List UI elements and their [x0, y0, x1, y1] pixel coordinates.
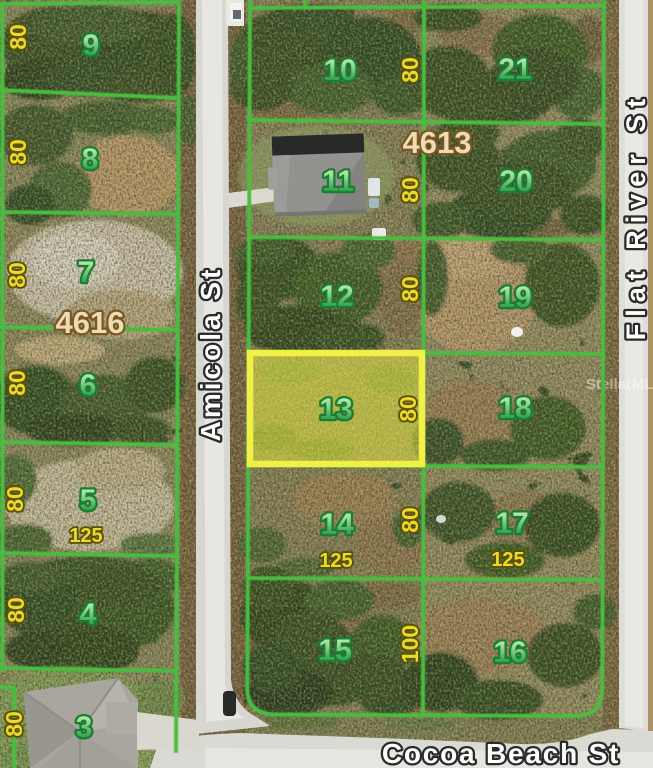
svg-text:100: 100 — [397, 625, 423, 663]
svg-text:80: 80 — [1, 711, 27, 737]
svg-text:80: 80 — [5, 139, 31, 165]
svg-text:125: 125 — [69, 525, 102, 547]
svg-text:13: 13 — [319, 393, 352, 426]
svg-text:80: 80 — [395, 396, 421, 422]
svg-text:15: 15 — [318, 634, 351, 667]
svg-text:19: 19 — [498, 281, 531, 314]
svg-text:4613: 4613 — [403, 125, 472, 160]
svg-text:21: 21 — [498, 53, 531, 86]
svg-text:20: 20 — [499, 165, 532, 198]
svg-text:4616: 4616 — [56, 305, 125, 340]
svg-text:80: 80 — [397, 177, 423, 203]
svg-text:80: 80 — [2, 486, 28, 512]
svg-text:Cocoa Beach St: Cocoa Beach St — [382, 738, 620, 768]
svg-text:Flat River St: Flat River St — [621, 92, 651, 341]
svg-text:80: 80 — [3, 597, 29, 623]
svg-text:12: 12 — [320, 280, 353, 313]
svg-text:80: 80 — [397, 507, 423, 533]
svg-text:Amicola St: Amicola St — [195, 267, 226, 442]
svg-text:11: 11 — [322, 165, 354, 198]
svg-text:5: 5 — [80, 484, 97, 517]
svg-text:4: 4 — [80, 598, 97, 631]
svg-text:80: 80 — [4, 262, 30, 288]
svg-text:125: 125 — [319, 550, 352, 572]
svg-text:6: 6 — [80, 369, 97, 402]
svg-text:80: 80 — [4, 370, 30, 396]
svg-text:14: 14 — [320, 508, 354, 541]
svg-text:7: 7 — [78, 256, 95, 289]
svg-text:StellarMLS: StellarMLS — [586, 376, 653, 393]
svg-text:10: 10 — [323, 54, 356, 87]
svg-text:17: 17 — [495, 507, 528, 540]
svg-text:125: 125 — [491, 549, 524, 571]
svg-text:3: 3 — [76, 711, 93, 744]
svg-text:80: 80 — [397, 57, 423, 83]
svg-text:80: 80 — [397, 276, 423, 302]
svg-text:8: 8 — [82, 143, 99, 176]
svg-text:16: 16 — [493, 636, 526, 669]
svg-text:18: 18 — [498, 392, 531, 425]
svg-text:80: 80 — [5, 24, 31, 50]
svg-text:9: 9 — [83, 29, 100, 62]
